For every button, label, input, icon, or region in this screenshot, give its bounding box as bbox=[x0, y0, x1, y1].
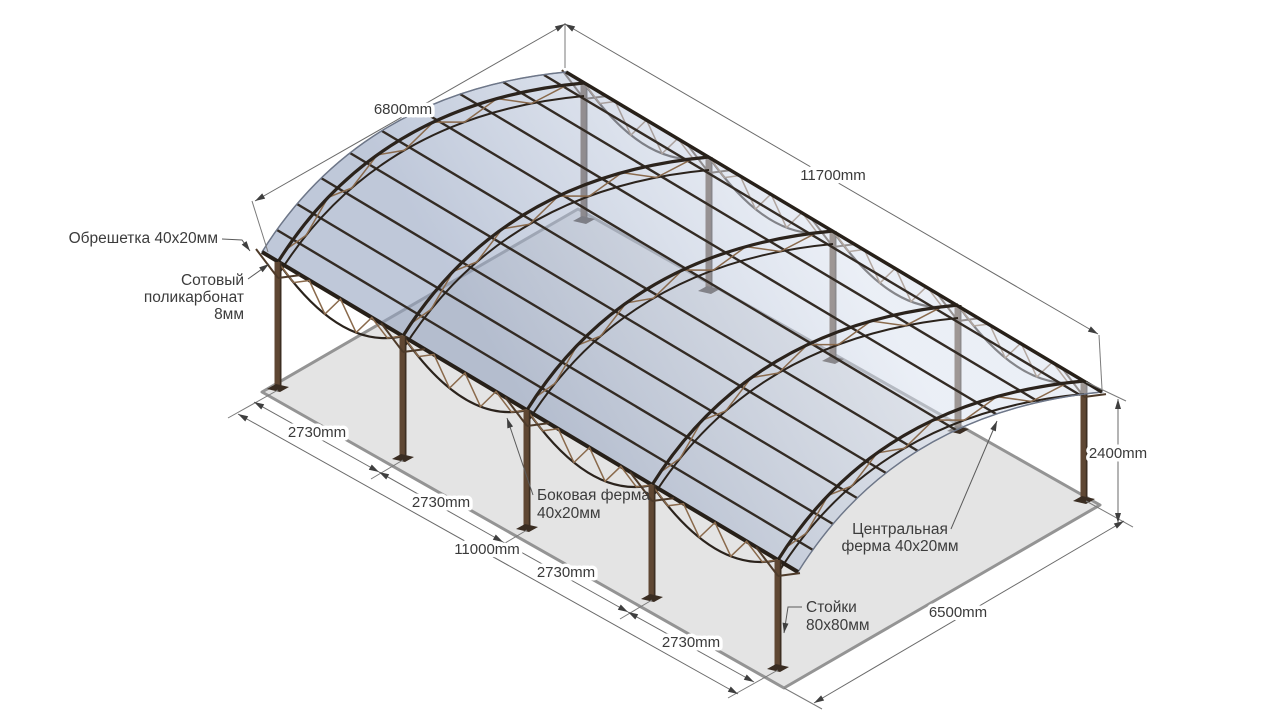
label-side-truss-line2: 40х20мм bbox=[537, 505, 601, 522]
label-central-truss: Центральная ферма 40х20мм bbox=[841, 521, 958, 555]
dim-ground-depth: 6500mm bbox=[929, 604, 987, 621]
label-polycarbonate-line2: поликарбонат bbox=[144, 289, 244, 306]
label-posts-line2: 80х80мм bbox=[806, 617, 870, 634]
label-polycarbonate-line1: Сотовый bbox=[181, 272, 244, 289]
label-posts-line1: Стойки bbox=[806, 599, 857, 616]
dim-posts-span: 11000mm bbox=[454, 541, 520, 558]
label-battens: Обрешетка 40х20мм bbox=[69, 230, 218, 247]
dim-height: 2400mm bbox=[1089, 445, 1147, 462]
label-central-truss-line2: ферма 40х20мм bbox=[841, 538, 958, 555]
dim-roof-length: 11700mm bbox=[800, 167, 866, 184]
canopy-drawing: 6800mm 11700mm 2400mm 6500mm 11000mm 273… bbox=[0, 0, 1280, 724]
dim-roof-width: 6800mm bbox=[374, 101, 432, 118]
label-central-truss-line1: Центральная bbox=[852, 521, 948, 538]
dim-bay-3: 2730mm bbox=[537, 564, 595, 581]
label-side-truss-line1: Боковая ферма bbox=[537, 487, 650, 504]
dim-bay-1: 2730mm bbox=[288, 424, 346, 441]
dim-bay-2: 2730mm bbox=[412, 494, 470, 511]
dim-bay-4: 2730mm bbox=[662, 634, 720, 651]
label-polycarbonate-line3: 8мм bbox=[214, 306, 244, 323]
